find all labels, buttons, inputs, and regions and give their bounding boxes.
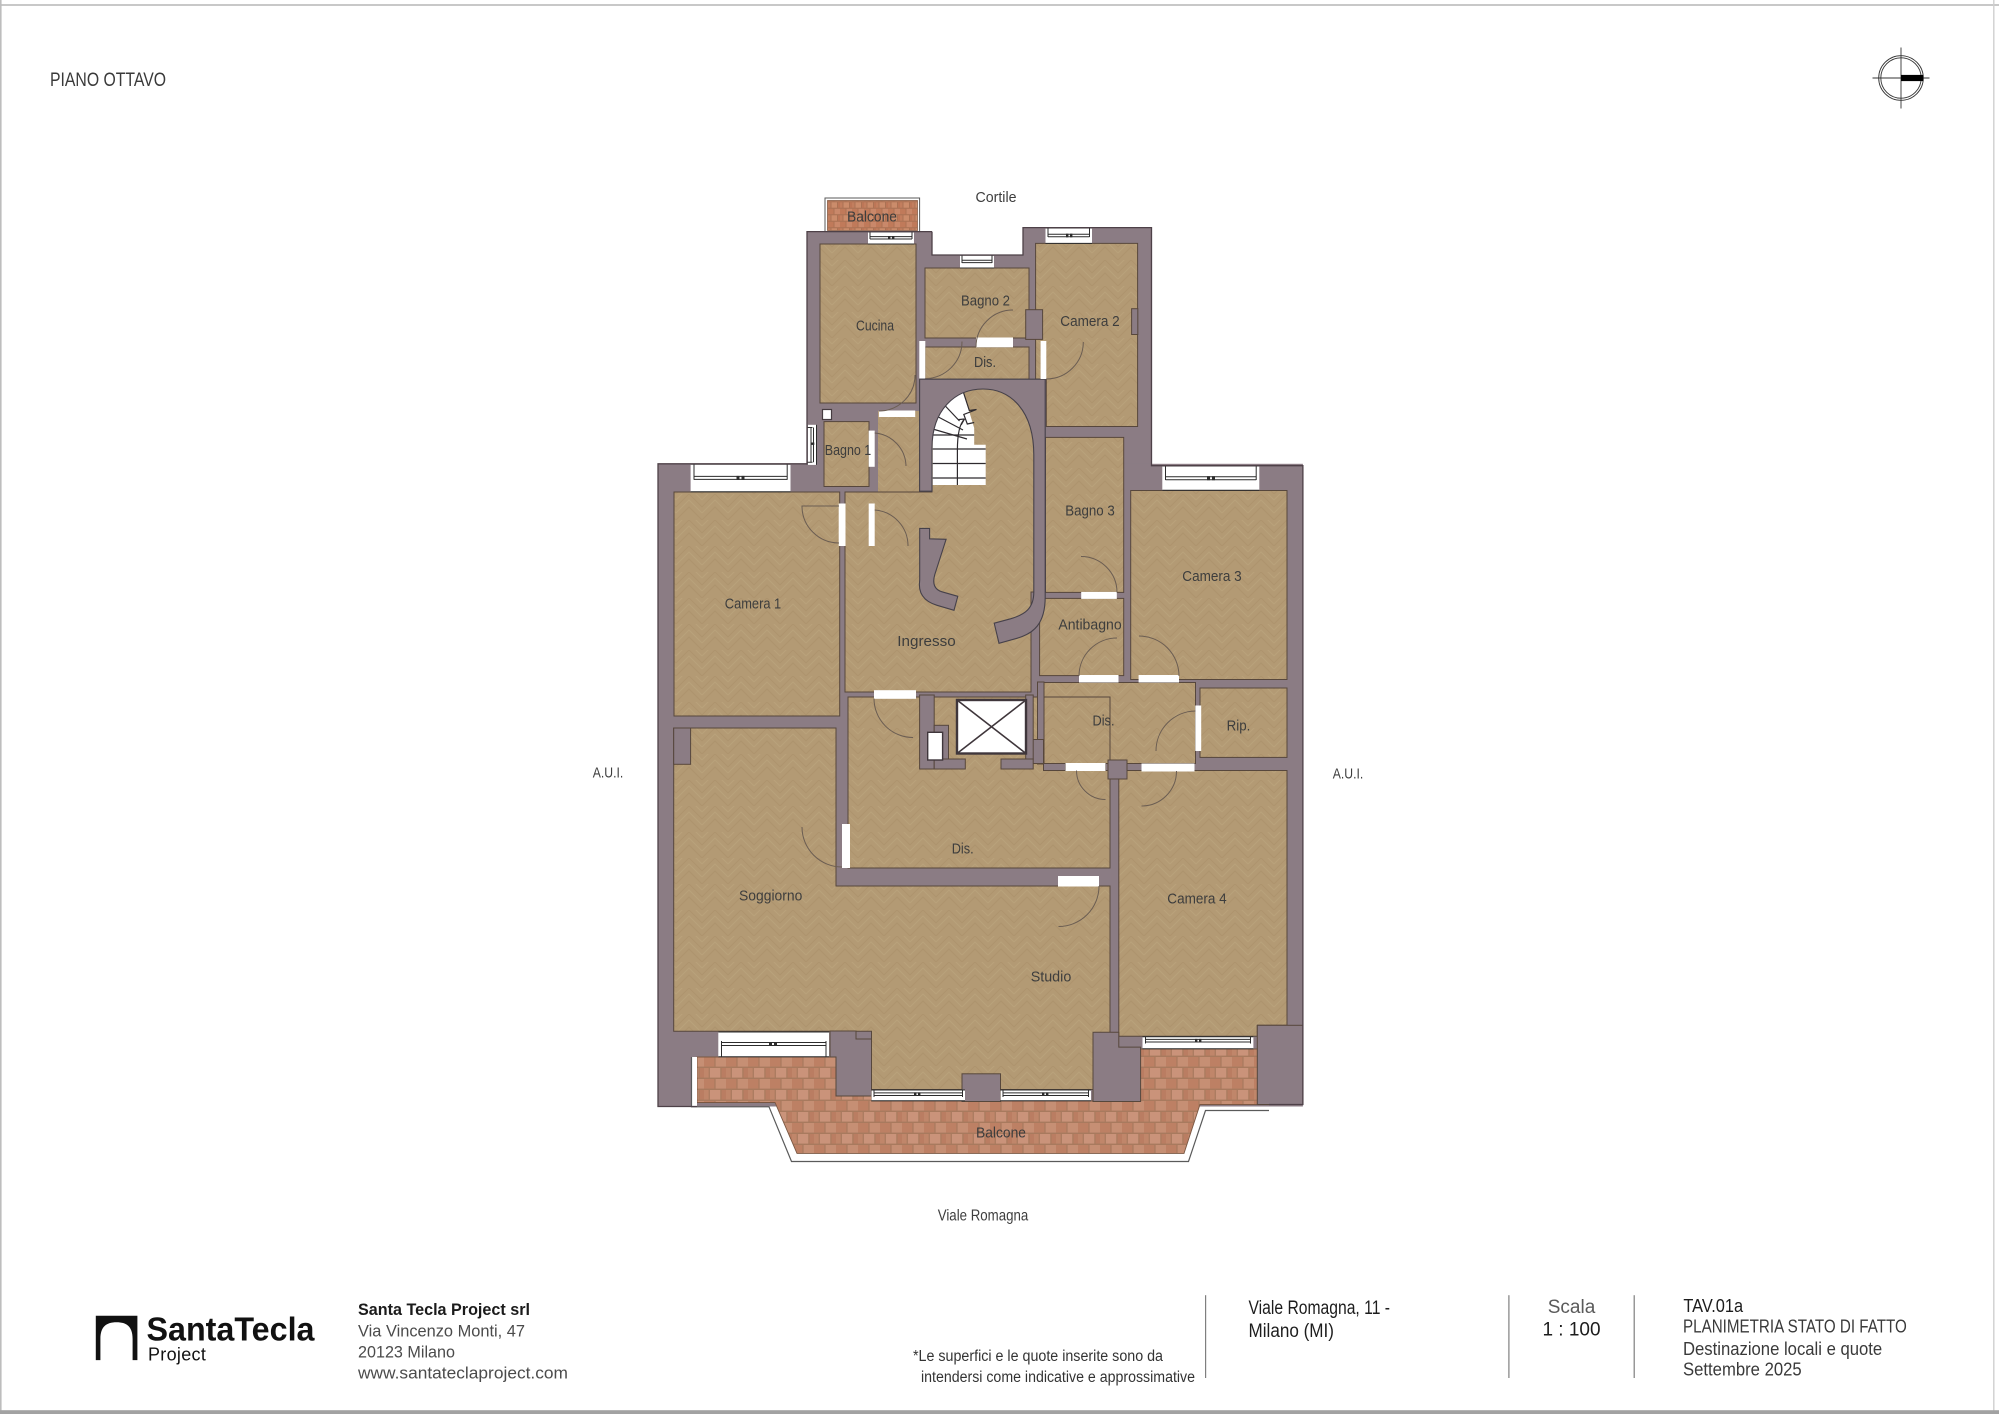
svg-text:Camera 1: Camera 1 [725, 596, 781, 613]
svg-text:Balcone: Balcone [847, 209, 897, 226]
svg-text:Destinazione locali e quote: Destinazione locali e quote [1683, 1338, 1882, 1359]
svg-text:Dis.: Dis. [952, 841, 974, 858]
svg-text:A.U.I.: A.U.I. [1333, 766, 1364, 783]
svg-text:Scala: Scala [1548, 1297, 1596, 1318]
svg-text:Camera 3: Camera 3 [1182, 568, 1241, 585]
svg-text:Viale Romagna: Viale Romagna [938, 1208, 1029, 1225]
svg-text:Antibagno: Antibagno [1058, 617, 1121, 634]
svg-text:SantaTecla: SantaTecla [147, 1310, 316, 1347]
svg-text:PLANIMETRIA STATO DI FATTO: PLANIMETRIA STATO DI FATTO [1683, 1316, 1907, 1337]
svg-text:Soggiorno: Soggiorno [739, 888, 802, 905]
svg-text:Milano (MI): Milano (MI) [1249, 1321, 1335, 1342]
svg-text:Rip.: Rip. [1227, 718, 1251, 735]
svg-text:A.U.I.: A.U.I. [593, 765, 624, 782]
svg-text:Studio: Studio [1031, 969, 1072, 986]
svg-text:Camera 4: Camera 4 [1167, 891, 1226, 908]
svg-text:Cucina: Cucina [856, 318, 895, 335]
svg-text:Camera 2: Camera 2 [1060, 313, 1119, 330]
svg-text:intendersi come indicative e a: intendersi come indicative e approssimat… [921, 1369, 1195, 1386]
svg-text:Project: Project [148, 1345, 206, 1365]
svg-text:Santa Tecla Project srl: Santa Tecla Project srl [358, 1300, 530, 1319]
svg-text:Ingresso: Ingresso [897, 633, 955, 650]
svg-text:*Le superfici e le quote inser: *Le superfici e le quote inserite sono d… [913, 1348, 1163, 1365]
svg-text:Viale Romagna, 11 -: Viale Romagna, 11 - [1249, 1298, 1391, 1319]
svg-text:www.santateclaproject.com: www.santateclaproject.com [357, 1364, 568, 1383]
svg-text:Bagno 1: Bagno 1 [825, 442, 872, 459]
svg-text:Cortile: Cortile [976, 189, 1017, 206]
svg-text:PIANO OTTAVO: PIANO OTTAVO [50, 70, 166, 91]
svg-text:Settembre 2025: Settembre 2025 [1683, 1359, 1802, 1380]
svg-text:TAV.01a: TAV.01a [1683, 1295, 1743, 1316]
svg-text:Dis.: Dis. [1093, 713, 1115, 730]
svg-text:20123 Milano: 20123 Milano [358, 1343, 455, 1362]
svg-text:Bagno 3: Bagno 3 [1065, 503, 1115, 520]
svg-text:Via Vincenzo Monti, 47: Via Vincenzo Monti, 47 [358, 1322, 525, 1341]
svg-text:Balcone: Balcone [976, 1125, 1026, 1142]
svg-text:Bagno 2: Bagno 2 [961, 293, 1010, 310]
svg-text:Dis.: Dis. [974, 354, 996, 371]
svg-text:1 : 100: 1 : 100 [1542, 1320, 1600, 1341]
